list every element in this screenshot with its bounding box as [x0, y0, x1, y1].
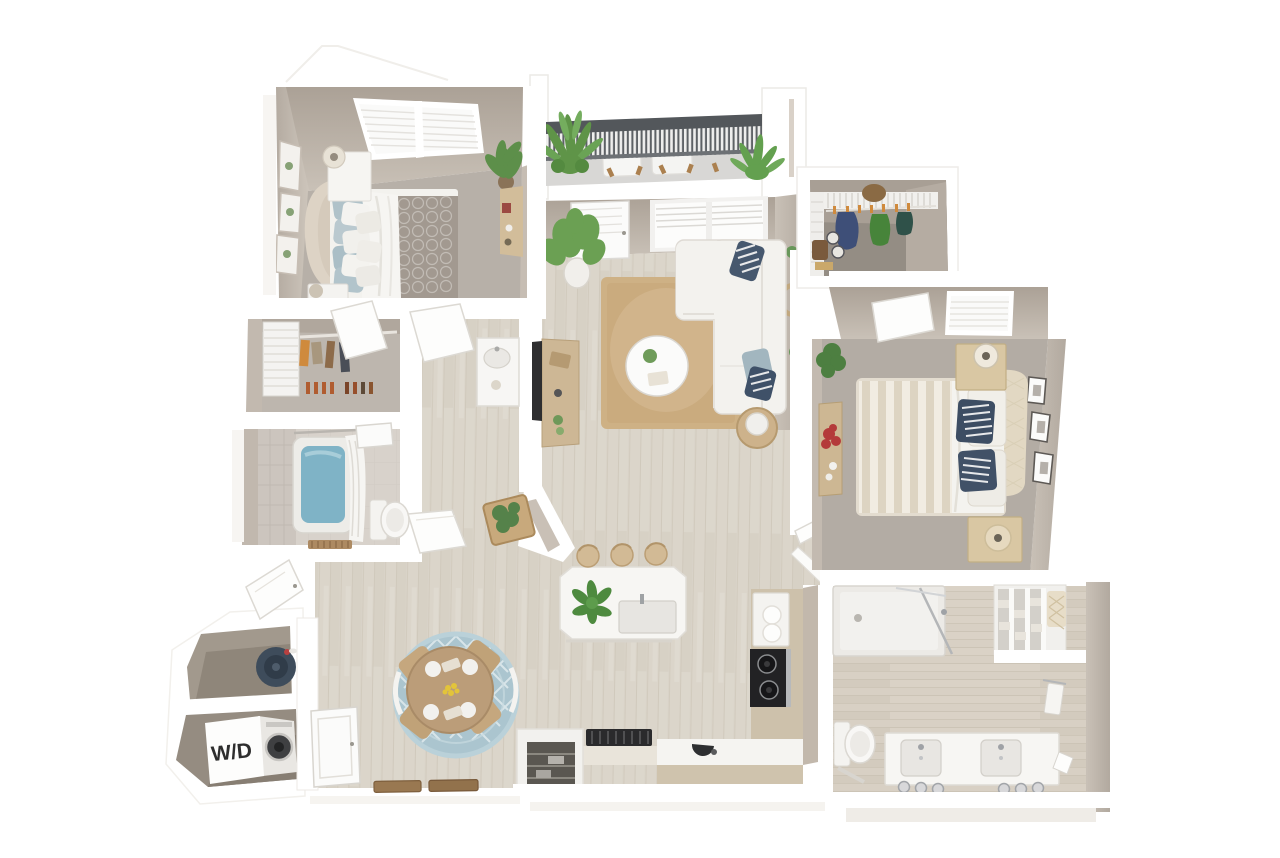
svg-text:W/D: W/D [210, 739, 253, 766]
